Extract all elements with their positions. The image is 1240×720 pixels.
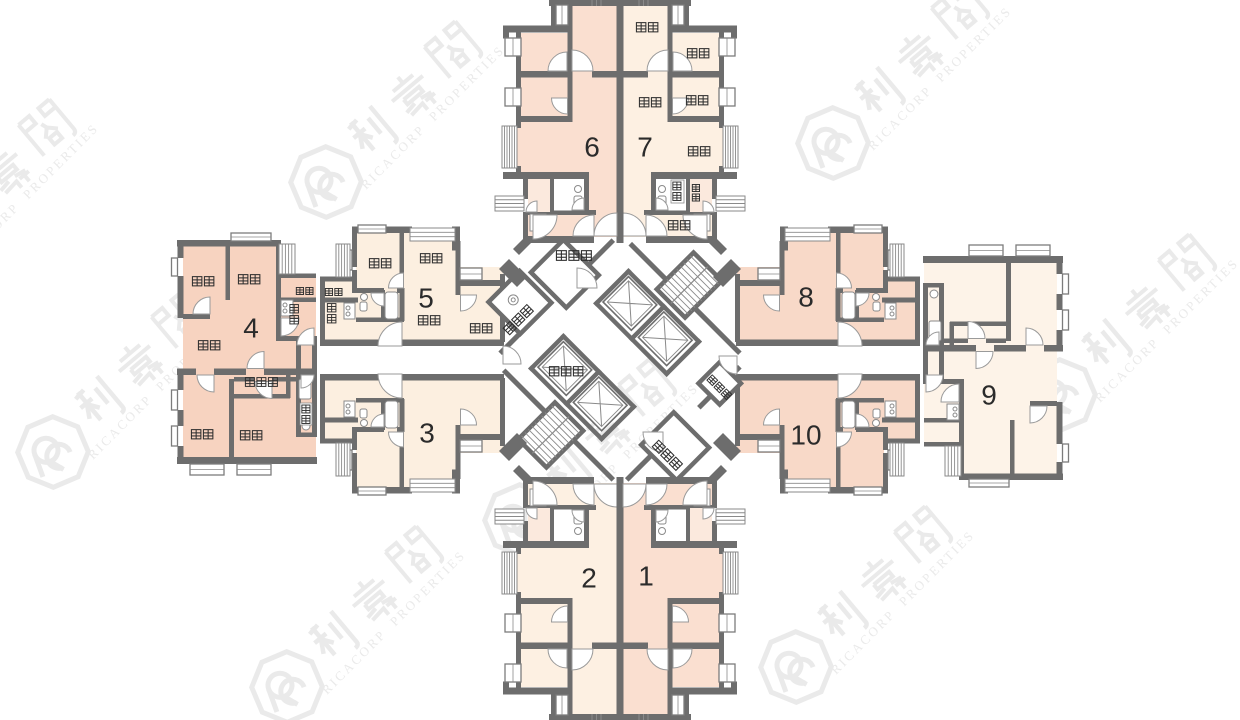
- svg-text:8: 8: [798, 281, 814, 312]
- svg-text:2: 2: [581, 562, 597, 593]
- svg-text:1: 1: [638, 560, 654, 591]
- svg-text:4: 4: [243, 312, 259, 343]
- svg-text:6: 6: [584, 131, 600, 162]
- svg-text:7: 7: [637, 131, 653, 162]
- svg-text:9: 9: [981, 379, 997, 410]
- svg-text:10: 10: [790, 419, 821, 450]
- svg-text:5: 5: [418, 282, 434, 313]
- svg-text:3: 3: [419, 417, 435, 448]
